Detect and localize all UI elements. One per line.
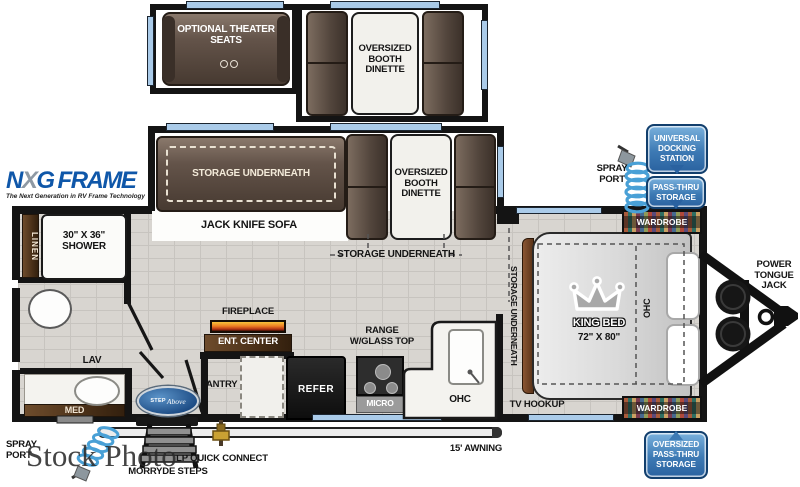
med-label: MED	[24, 405, 125, 415]
ent-center-label: ENT. CENTER	[204, 337, 292, 348]
ohc-bedroom-label: OHC	[642, 286, 656, 330]
bedroom-storage-label: STORAGE UNDERNEATH	[504, 256, 518, 376]
fireplace-label: FIREPLACE	[206, 307, 290, 318]
ohc-kitchen-label: OHC	[434, 394, 486, 405]
passthru-storage-label: PASS-THRU STORAGE	[650, 183, 702, 202]
stock-photo-watermark: Stock Photo	[26, 438, 177, 474]
lav-label: LAV	[72, 355, 112, 366]
nxg-letter-g: G	[36, 167, 53, 194]
linen-label: LINEN	[23, 218, 38, 274]
micro-label: MICRO	[356, 399, 404, 409]
dinette-storage-label: STORAGE UNDERNEATH	[322, 249, 470, 260]
sofa-storage-label: STORAGE UNDERNEATH	[170, 168, 332, 179]
rv-floorplan: NXGFRAME The Next Generation in RV Frame…	[0, 0, 800, 487]
oversized-passthru-label: OVERSIZED PASS-THRU STORAGE	[648, 440, 704, 469]
tv-hookup-label: TV HOOKUP	[504, 400, 570, 411]
kitchen-sink-icon	[449, 330, 483, 384]
nxg-word-frame: FRAME	[58, 167, 136, 194]
oversized-passthru-badge: OVERSIZED PASS-THRU STORAGE	[644, 431, 708, 479]
awning-label: 15' AWNING	[440, 444, 512, 455]
tongue-jack-foot-icon	[760, 311, 773, 324]
power-tongue-jack-label: POWER TONGUE JACK	[748, 260, 800, 292]
lp-quick-connect-icon	[213, 420, 229, 446]
king-bed-size-label: 72" X 80"	[558, 332, 640, 343]
shower-label: 30" X 36" SHOWER	[46, 230, 122, 252]
jack-knife-sofa-label: JACK KNIFE SOFA	[158, 219, 340, 231]
spray-port-right-label: SPRAY PORT	[588, 164, 636, 185]
docking-station-label: UNIVERSAL DOCKING STATION	[650, 134, 704, 163]
top-dinette-label: OVERSIZED BOOTH DINETTE	[354, 44, 416, 76]
stepabove-logo: STEP Above	[137, 386, 199, 416]
refer-label: REFER	[286, 384, 346, 395]
stepabove-above: Above	[167, 397, 186, 406]
nxg-letter-x: X	[22, 167, 37, 194]
stepabove-step: STEP	[150, 398, 166, 404]
range-label: RANGE W/GLASS TOP	[346, 326, 418, 347]
pantry-label: PANTRY	[196, 380, 242, 391]
lp-quick-connect-label: LP QUICK CONNECT	[174, 454, 270, 465]
theater-seats-label: OPTIONAL THEATER SEATS	[170, 24, 282, 46]
main-dinette-label: OVERSIZED BOOTH DINETTE	[392, 168, 450, 200]
nxg-frame-logo: NXGFRAME The Next Generation in RV Frame…	[6, 167, 176, 200]
king-bed-label: KING BED	[558, 317, 640, 329]
nxg-tagline: The Next Generation in RV Frame Technolo…	[6, 193, 176, 200]
hitch-coupler-icon	[774, 306, 798, 326]
passthru-storage-badge: PASS-THRU STORAGE	[646, 176, 706, 209]
nxg-letter-n: N	[6, 167, 22, 194]
docking-station-badge: UNIVERSAL DOCKING STATION	[646, 124, 708, 174]
